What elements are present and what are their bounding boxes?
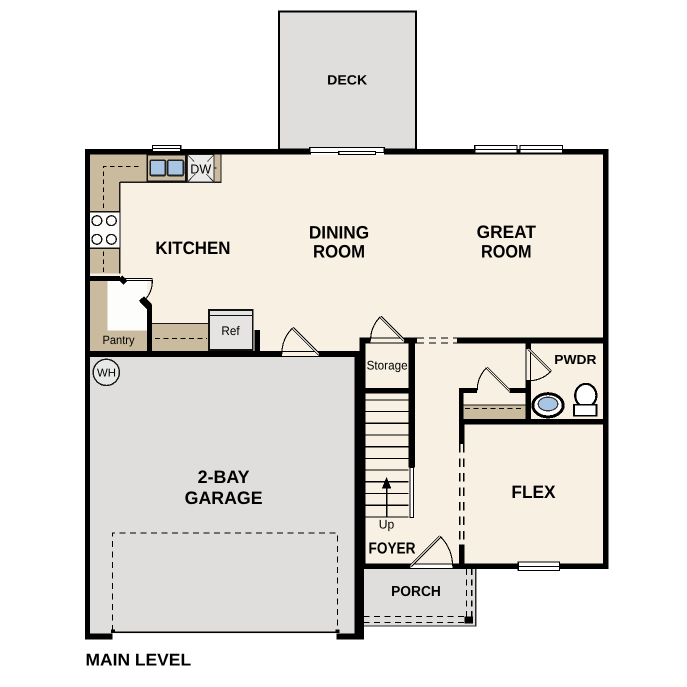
svg-text:PWDR: PWDR <box>554 352 597 367</box>
svg-text:FLEX: FLEX <box>511 482 555 502</box>
svg-text:GARAGE: GARAGE <box>185 488 263 508</box>
svg-text:Up: Up <box>379 518 395 532</box>
svg-text:FOYER: FOYER <box>369 541 416 558</box>
svg-text:MAIN LEVEL: MAIN LEVEL <box>86 650 192 669</box>
svg-text:Storage: Storage <box>367 359 408 373</box>
svg-text:ROOM: ROOM <box>313 242 365 262</box>
svg-text:DINING: DINING <box>309 222 369 242</box>
svg-text:2-BAY: 2-BAY <box>198 467 250 487</box>
svg-text:WH: WH <box>97 368 116 380</box>
svg-text:KITCHEN: KITCHEN <box>155 238 230 258</box>
svg-text:GREAT: GREAT <box>477 222 536 242</box>
svg-text:ROOM: ROOM <box>481 242 532 262</box>
svg-text:Ref: Ref <box>221 324 240 338</box>
svg-text:DW: DW <box>190 161 212 176</box>
svg-text:Pantry: Pantry <box>103 333 135 347</box>
svg-text:PORCH: PORCH <box>391 584 441 600</box>
svg-text:DECK: DECK <box>327 72 367 87</box>
